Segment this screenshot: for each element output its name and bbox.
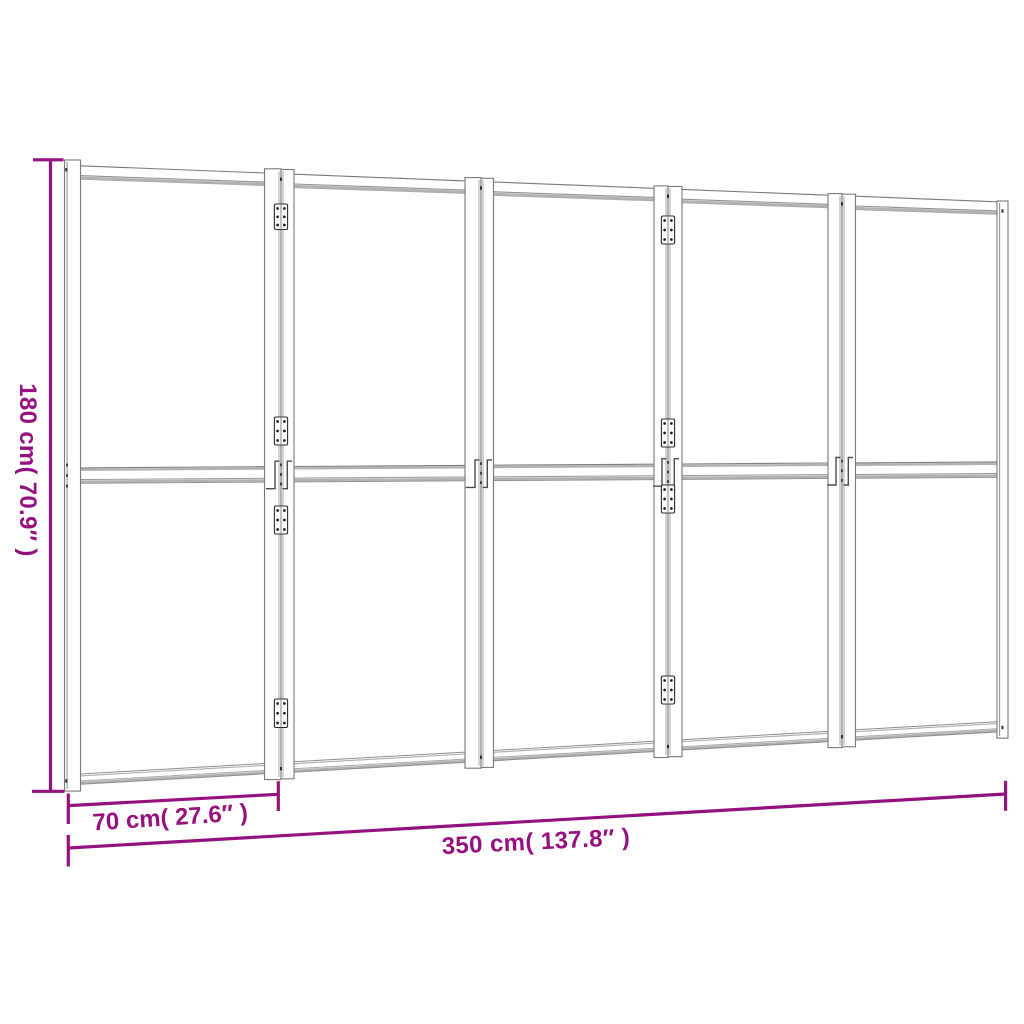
svg-text:180 cm( 70.9″ ): 180 cm( 70.9″ ) — [14, 383, 41, 556]
